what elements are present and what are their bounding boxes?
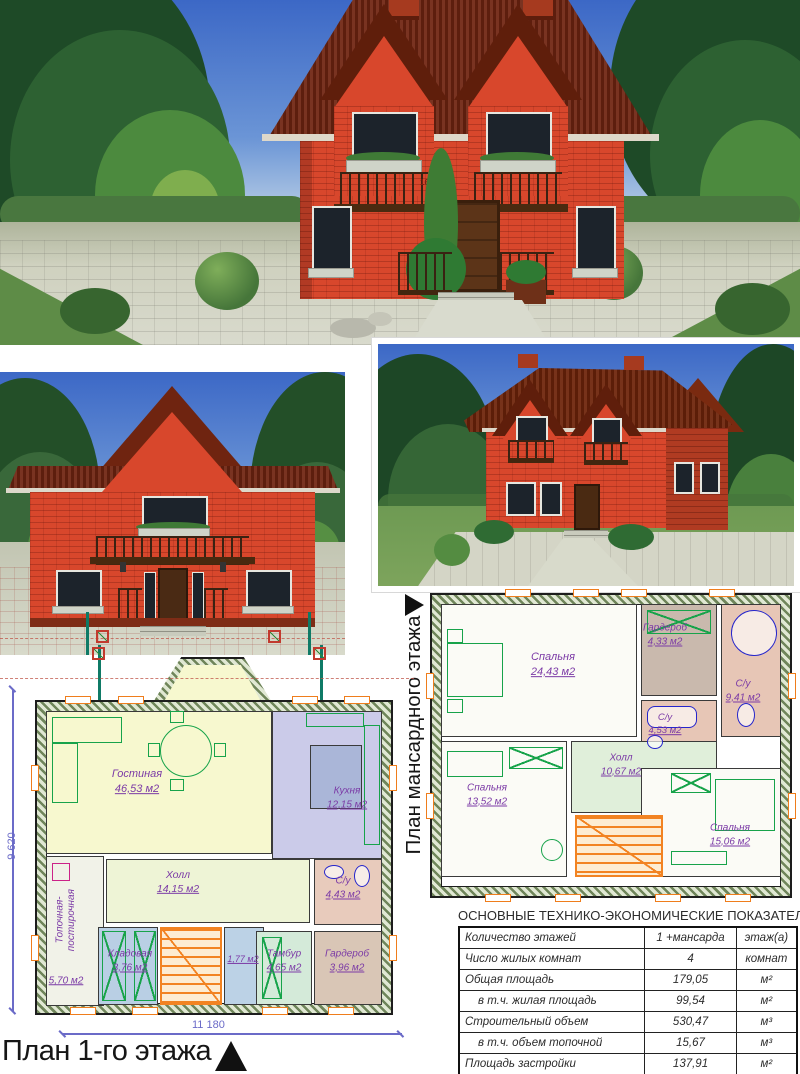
room-label: Холл14,15 м2: [157, 868, 199, 896]
attic-plan-title: План мансардного этажа: [402, 600, 426, 870]
front-door: [574, 484, 600, 530]
bed: [447, 751, 503, 777]
room-label: Гостиная46,53 м2: [112, 767, 162, 797]
chimney: [518, 354, 538, 368]
window: [312, 206, 352, 274]
room-label: С/у9,41 м2: [726, 678, 761, 705]
window: [246, 570, 292, 610]
plant: [541, 839, 563, 861]
row-value: 530,47: [645, 1012, 736, 1033]
row-unit: м²: [736, 970, 797, 991]
room-label: Кухня12,15 м2: [327, 785, 367, 812]
room-label: Спальня24,43 м2: [531, 650, 575, 680]
bush: [195, 252, 259, 310]
bush: [474, 520, 514, 544]
dimension-height: 9 620: [6, 822, 18, 870]
spec-table-block: ОСНОВНЫЕ ТЕХНИКО-ЭКОНОМИЧЕСКИЕ ПОКАЗАТЕЛ…: [458, 908, 798, 1074]
row-unit: м³: [736, 1033, 797, 1054]
corner-bathtub: [731, 610, 777, 656]
row-label: Площадь застройки: [459, 1054, 645, 1074]
house-photo-front: [0, 372, 345, 655]
stairs: [160, 927, 222, 1005]
row-label: Общая площадь: [459, 970, 645, 991]
table-row: Строительный объем530,47м³: [459, 1012, 797, 1033]
axis-marker: [313, 647, 326, 660]
eaves: [262, 134, 659, 141]
room-label: Топочная-постирочная5,70 м2: [49, 866, 84, 988]
row-value: 15,67: [645, 1033, 736, 1054]
project-sheet: 166-01: [0, 0, 800, 1074]
row-unit: м²: [736, 991, 797, 1012]
room-label: Холл10,67 м2: [601, 752, 641, 779]
axis-line: [0, 678, 414, 679]
table-row: Число жилых комнат4комнат: [459, 949, 797, 970]
row-unit: м³: [736, 1012, 797, 1033]
chimney: [624, 356, 644, 370]
house-photo-perspective: 166-01: [0, 0, 800, 345]
balcony: [508, 440, 554, 463]
room-label: Гардероб4,33 м2: [643, 622, 687, 649]
table-row: Общая площадь179,05м²: [459, 970, 797, 991]
house-photo-angle: [372, 338, 800, 592]
row-label: Строительный объем: [459, 1012, 645, 1033]
row-value: 1 +мансарда: [645, 927, 736, 949]
stairs: [575, 815, 663, 877]
room-label: Кладовая3,76 м2: [108, 948, 152, 975]
room-label: Гардероб3,96 м2: [325, 948, 369, 975]
axis-marker: [92, 647, 105, 660]
dimension-width: 11 180: [192, 1019, 225, 1031]
room-label: Тамбур4,65 м2: [267, 948, 302, 975]
spec-table-title: ОСНОВНЫЕ ТЕХНИКО-ЭКОНОМИЧЕСКИЕ ПОКАЗАТЕЛ…: [458, 908, 798, 923]
room-hall: [106, 859, 310, 923]
row-value: 4: [645, 949, 736, 970]
dimension-line-width: [62, 1033, 402, 1035]
axis-marker: [268, 630, 281, 643]
table-row: в т.ч. жилая площадь99,54м²: [459, 991, 797, 1012]
spec-table: Количество этажей1 +мансардаэтаж(а)Число…: [458, 926, 798, 1074]
row-label: в т.ч. жилая площадь: [459, 991, 645, 1012]
window: [576, 206, 616, 274]
row-unit: м²: [736, 1054, 797, 1074]
dining-table: [160, 725, 212, 777]
table-row: Площадь застройки137,91м²: [459, 1054, 797, 1074]
row-value: 99,54: [645, 991, 736, 1012]
row-value: 137,91: [645, 1054, 736, 1074]
balcony: [584, 442, 628, 465]
table-row: Количество этажей1 +мансардаэтаж(а): [459, 927, 797, 949]
sofa: [52, 717, 122, 743]
bed: [447, 643, 503, 697]
table-row: в т.ч. объем топочной15,67м³: [459, 1033, 797, 1054]
first-floor-plan: Гостиная46,53 м2Кухня12,15 м2Холл14,15 м…: [10, 645, 410, 1025]
row-unit: комнат: [736, 949, 797, 970]
axis-marker: [96, 630, 109, 643]
first-floor-plan-pointer: [215, 1041, 247, 1071]
row-label: в т.ч. объем топочной: [459, 1033, 645, 1054]
attic-plan-pointer: [405, 594, 424, 616]
room-label: Спальня15,06 м2: [710, 822, 750, 849]
window: [56, 570, 102, 610]
room-label: 1,77 м2: [227, 953, 258, 965]
toilet: [737, 703, 755, 727]
room-label: Спальня13,52 м2: [467, 782, 507, 809]
row-label: Число жилых комнат: [459, 949, 645, 970]
room-label: С/у4,43 м2: [326, 875, 361, 902]
first-floor-plan-title: План 1-го этажа: [2, 1035, 211, 1068]
front-door: [158, 568, 188, 624]
attic-floor-plan: Спальня24,43 м2Гардероб4,33 м2С/у9,41 м2…: [425, 583, 800, 908]
row-unit: этаж(а): [736, 927, 797, 949]
row-label: Количество этажей: [459, 927, 645, 949]
room-label: С/у4,53 м2: [649, 712, 682, 738]
row-value: 179,05: [645, 970, 736, 991]
